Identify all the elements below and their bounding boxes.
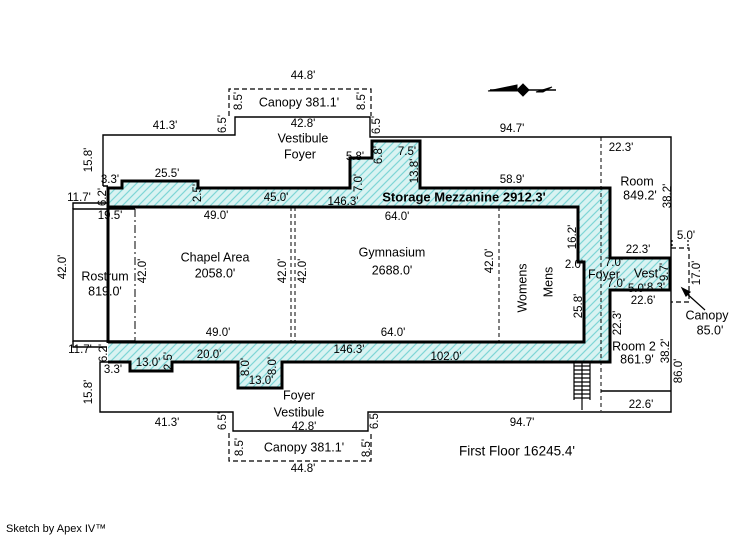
dimension-label: 58.9' (500, 174, 525, 186)
dimension-label: 86.0' (673, 359, 685, 384)
dimension-label: 5.0' (677, 230, 695, 242)
dimension-label: 5.0' (628, 283, 646, 295)
dimension-label: 44.8' (291, 463, 316, 475)
dimension-label: 2.5' (192, 184, 204, 202)
dimension-label: 146.3' (334, 344, 365, 356)
dimension-label: 49.0' (206, 327, 231, 339)
dimension-label: 44.8' (291, 70, 316, 82)
room-label: Room (620, 174, 653, 188)
dimension-label: 9.7' (659, 263, 671, 281)
dimension-label: 13.0' (249, 375, 274, 387)
room-label: Canopy (685, 308, 729, 322)
dimension-label: 2.0' (565, 259, 583, 271)
dimension-label: 8.5' (234, 438, 246, 456)
room-label: 2058.0' (195, 266, 236, 280)
dimension-label: 8.0' (267, 357, 279, 375)
room-label: Vestibule (278, 131, 329, 145)
dimension-label: 45.0' (264, 192, 289, 204)
dimension-label: 42.8' (292, 421, 317, 433)
room-label: Rostrum (81, 269, 128, 283)
dimension-label: 13.0' (136, 357, 161, 369)
dimension-label: 7.5' (398, 146, 416, 158)
dimension-label: 49.0' (204, 210, 229, 222)
dimension-label: 6.2' (97, 188, 109, 206)
dimension-label: 64.0' (381, 327, 406, 339)
room-label: Mens (541, 267, 555, 298)
room-label: 85.0' (697, 323, 724, 337)
room-label: Canopy 381.1' (259, 95, 339, 109)
dimension-label: 8.5' (356, 92, 368, 110)
room-label: 2688.0' (372, 263, 413, 277)
room-label: 861.9' (620, 352, 654, 366)
dimension-label: 94.7' (510, 417, 535, 429)
dimension-label: 7.0' (353, 174, 365, 192)
dimension-label: 42.0' (297, 259, 309, 284)
room-label: Chapel Area (181, 250, 250, 264)
room-label: Storage Mezzanine 2912.3' (382, 189, 546, 204)
dimension-label: 6.5' (371, 116, 383, 134)
sketch-credit: Sketch by Apex IV™ (6, 523, 106, 535)
dimension-label: 42.0' (57, 255, 69, 280)
dimension-label: 25.5' (155, 168, 180, 180)
dimension-label: 64.0' (385, 211, 410, 223)
dimension-label: 22.3' (609, 142, 634, 154)
room-label: Womens (515, 263, 529, 312)
stairs-icon (574, 363, 590, 410)
canopy-arrow (682, 288, 705, 310)
dimension-label: 22.3' (612, 311, 624, 336)
dimension-label: 15.8' (83, 380, 95, 405)
room-label: Vestibule (274, 405, 325, 419)
mezzanine-bottom-and-hall-edges (108, 207, 584, 342)
dimension-label: 22.6' (631, 295, 656, 307)
dimension-label: 15.8' (83, 148, 95, 173)
dimension-label: 38.2' (660, 339, 672, 364)
dimension-label: 2.5' (163, 352, 175, 370)
dimension-label: 13.8' (409, 159, 421, 184)
dimension-label: 6.5' (217, 412, 229, 430)
dimension-label: 42.0' (137, 259, 149, 284)
room-label: Vest (634, 266, 659, 280)
summary-label: First Floor 16245.4' (459, 444, 575, 459)
dimension-label: 22.6' (629, 399, 654, 411)
dimension-label: 42.0' (277, 259, 289, 284)
dimension-label: 11.7' (67, 192, 91, 204)
room-label: 819.0' (88, 284, 122, 298)
floor-plan-svg: 44.8'Canopy 381.1'8.5'8.5'41.3'6.5'6.5'4… (0, 0, 746, 547)
dimension-label: 6.2' (98, 344, 110, 362)
dimension-label: 16.2' (567, 225, 579, 250)
dimension-label: 6.8' (373, 146, 385, 164)
room-label: Room 2 (612, 339, 656, 353)
dimension-label: 11.7' (68, 344, 92, 356)
dimension-label: 7.0' (607, 278, 625, 290)
room-label: Foyer (283, 388, 315, 402)
dimension-label: 5.8' (346, 151, 364, 163)
compass-icon (488, 84, 556, 96)
dimension-label: 42.0' (484, 249, 496, 274)
dimension-label: 146.3' (328, 196, 359, 208)
dimension-label: 6.5' (217, 115, 229, 133)
room-label: Canopy 381.1' (264, 440, 344, 454)
room-label: 849.2' (623, 188, 657, 202)
dimension-label: 8.3' (647, 282, 665, 294)
dimension-label: 8.5' (233, 92, 245, 110)
dimension-label: 17.0' (691, 261, 703, 286)
dimension-label: 42.8' (291, 118, 316, 130)
dimension-label: 3.3' (101, 174, 119, 186)
dimension-label: 94.7' (500, 123, 525, 135)
room-label: Gymnasium (359, 245, 426, 259)
dimension-label: 25.8' (573, 294, 585, 319)
dimension-label: 41.3' (155, 417, 180, 429)
dimension-label: 20.0' (197, 349, 222, 361)
dimension-label: 22.3' (626, 244, 651, 256)
dimension-label: 38.2' (662, 184, 674, 209)
room-label: Foyer (284, 147, 316, 161)
dimension-label: 6.5' (369, 411, 381, 429)
dimension-label: 8.0' (240, 358, 252, 376)
dimension-label: 19.5' (98, 210, 123, 222)
dimension-label: 102.0' (431, 351, 462, 363)
dimension-label: 3.3' (104, 364, 122, 376)
dimension-label: 8.5' (361, 439, 373, 457)
floor-plan-sketch: 44.8'Canopy 381.1'8.5'8.5'41.3'6.5'6.5'4… (0, 0, 746, 547)
dimension-label: 41.3' (153, 120, 178, 132)
